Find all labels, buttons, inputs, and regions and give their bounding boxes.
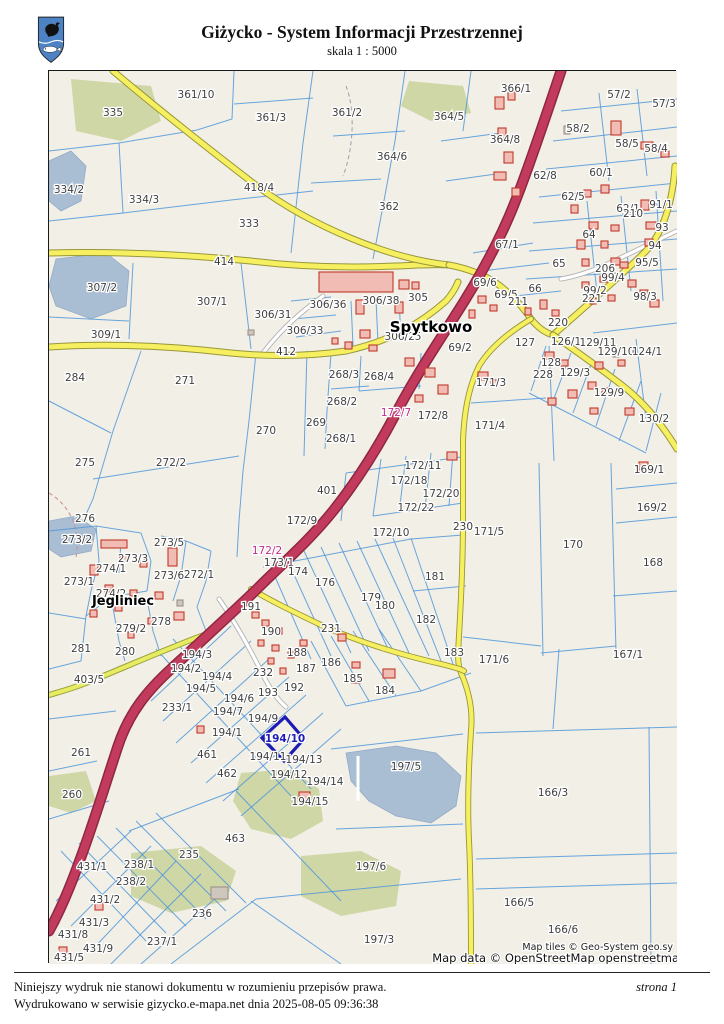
parcel-label: 58/5: [615, 138, 639, 150]
parcel-label: 235: [179, 849, 199, 861]
parcel-label: 194/4: [202, 671, 233, 683]
parcel-label: 197/6: [356, 861, 387, 873]
parcel-label: 69/2: [448, 342, 472, 354]
building: [248, 330, 254, 335]
parcel-label: 194/7: [213, 706, 243, 718]
parcel-label: 190: [261, 626, 281, 638]
parcel-label: 185: [343, 673, 363, 685]
parcel-label: 361/2: [332, 107, 362, 119]
parcel-label: 281: [71, 643, 91, 655]
parcel-label: 194/3: [182, 649, 212, 661]
parcel-label: 98/3: [633, 291, 657, 303]
parcel-label: 364/8: [490, 134, 520, 146]
parcel-label: 99/4: [601, 272, 625, 284]
parcel-label: 194/2: [171, 663, 201, 675]
parcel-label: 334/2: [54, 184, 84, 196]
building: [611, 225, 619, 231]
parcel-label: 171/5: [474, 526, 504, 538]
parcel-label: 176: [315, 577, 335, 589]
building: [618, 360, 625, 366]
parcel-label: 193: [258, 687, 278, 699]
parcel-label: 128: [541, 357, 561, 369]
parcel-label: 129/10: [598, 346, 635, 358]
parcel-label: 268/2: [327, 396, 357, 408]
parcel-label: 126/1: [551, 336, 581, 348]
building: [568, 390, 577, 398]
parcel-label: 364/6: [377, 151, 408, 163]
parcel-label: 274/1: [96, 563, 126, 575]
building: [571, 205, 578, 213]
parcel-label: 194/12: [271, 769, 308, 781]
building: [177, 600, 183, 606]
road-label: 211: [508, 296, 528, 308]
building: [399, 280, 409, 289]
parcel-label: 333: [239, 218, 259, 230]
parcel-label: 95/5: [635, 257, 659, 269]
parcel-label: 166/3: [538, 787, 568, 799]
building: [360, 330, 370, 338]
parcel-label: 194/6: [224, 693, 255, 705]
parcel-label: 66: [528, 283, 542, 295]
parcel-label: 171/6: [479, 654, 510, 666]
building: [300, 640, 307, 646]
parcel-label: 67/1: [495, 239, 519, 251]
building: [589, 222, 598, 229]
parcel-label: 129/3: [560, 367, 590, 379]
attribution-osm: Map data © OpenStreetMap openstreetma: [432, 951, 677, 964]
parcel-label: 129/9: [594, 387, 624, 399]
building: [211, 887, 228, 899]
parcel-label: 172/9: [287, 515, 317, 527]
parcel-label: 174: [288, 566, 308, 578]
building: [319, 272, 393, 292]
parcel-label: 187: [296, 663, 316, 675]
building: [582, 259, 589, 266]
parcel-label: 306/33: [287, 325, 324, 337]
building: [611, 121, 621, 135]
parcel-label: 431/2: [90, 894, 120, 906]
parcel-label: 169/1: [634, 464, 664, 476]
parcel-label: 275: [75, 457, 95, 469]
parcel-label: 273/2: [62, 534, 92, 546]
parcel-label: 58/2: [566, 123, 590, 135]
parcel-label: 62/5: [561, 191, 585, 203]
parcel-label: 273/6: [154, 570, 185, 582]
parcel-label: 431/9: [83, 943, 113, 955]
footer-divider: [14, 972, 710, 973]
building: [478, 296, 486, 303]
building: [352, 662, 360, 668]
road-label: 220: [548, 317, 568, 329]
parcel-label: 172/11: [405, 460, 442, 472]
page-number: strona 1: [636, 980, 677, 995]
parcel-label: 272/1: [184, 569, 214, 581]
parcel-label: 260: [62, 789, 82, 801]
highlighted-parcel-label: 172/2: [252, 545, 282, 557]
building: [469, 310, 475, 318]
building: [540, 300, 547, 309]
parcel-label: 276: [75, 513, 95, 525]
building: [504, 152, 513, 163]
road-label: 210: [623, 208, 643, 220]
building: [620, 262, 628, 268]
parcel-label: 172/22: [398, 502, 435, 514]
building: [608, 295, 615, 301]
parcel-label: 335: [103, 107, 123, 119]
parcel-label: 191: [241, 601, 261, 613]
building: [155, 592, 163, 599]
building: [383, 669, 395, 678]
building: [577, 240, 585, 249]
building: [601, 241, 608, 248]
building: [625, 408, 634, 415]
parcel-label: 418/4: [244, 182, 275, 194]
building: [628, 280, 636, 287]
parcel-label: 168: [643, 557, 663, 569]
parcel-label: 431/8: [58, 929, 88, 941]
parcel-label: 269: [306, 417, 326, 429]
parcel-label: 233/1: [162, 702, 192, 714]
building: [548, 398, 556, 405]
building: [412, 282, 419, 289]
parcel-label: 184: [375, 685, 395, 697]
parcel-label: 307/1: [197, 296, 227, 308]
parcel-label: 221: [582, 293, 602, 305]
parcel-label: 194/14: [307, 776, 344, 788]
building: [525, 308, 531, 315]
parcel-label: 192: [284, 682, 304, 694]
parcel-label: 194/15: [292, 796, 329, 808]
road-label: 412: [276, 346, 296, 358]
building: [268, 658, 274, 664]
road-label: 230: [453, 521, 473, 533]
building: [197, 726, 204, 733]
parcel-label: 273/1: [64, 576, 94, 588]
parcel-label: 57/2: [607, 89, 631, 101]
parcel-label: 362: [379, 201, 399, 213]
parcel-label: 261: [71, 747, 91, 759]
parcel-label: 238/2: [116, 876, 146, 888]
parcel-label: 431/1: [77, 861, 107, 873]
parcel-label: 271: [175, 375, 195, 387]
building: [494, 172, 506, 180]
building: [495, 97, 504, 109]
parcel-label: 94: [648, 240, 662, 252]
building: [512, 188, 520, 196]
parcel-label: 431/3: [79, 917, 109, 929]
parcel-label: 284: [65, 372, 85, 384]
parcel-label: 171/3: [476, 377, 506, 389]
parcel-label: 334/3: [129, 194, 159, 206]
building: [601, 185, 609, 193]
parcel-label: 183: [444, 647, 464, 659]
building: [258, 640, 264, 646]
parcel-label: 361/10: [178, 89, 215, 101]
road-label: 403/5: [74, 674, 104, 686]
parcel-label: 172/18: [391, 475, 428, 487]
parcel-label: 127: [515, 337, 535, 349]
parcel-label: 307/2: [87, 282, 117, 294]
parcel-label: 58/4: [644, 143, 668, 155]
cadastral-map: 335361/10361/3361/2364/5366/157/257/358/…: [49, 71, 677, 964]
parcel-label: 270: [256, 425, 276, 437]
parcel-label: 169/2: [637, 502, 667, 514]
parcel-label: 431/5: [54, 952, 84, 964]
parcel-label: 236: [192, 908, 212, 920]
parcel-label: 273/5: [154, 537, 184, 549]
parcel-label: 170: [563, 539, 583, 551]
parcel-label: 272/2: [156, 457, 186, 469]
building: [584, 190, 591, 197]
parcel-label: 194/9: [248, 713, 278, 725]
parcel-label: 463: [225, 833, 245, 845]
building: [90, 610, 97, 617]
parcel-label: 188: [287, 647, 307, 659]
building: [552, 310, 559, 316]
place-label-jegliniec: Jegliniec: [91, 594, 154, 609]
parcel-label: 361/3: [256, 112, 286, 124]
building: [447, 452, 457, 460]
parcel-label: 171/4: [475, 420, 506, 432]
parcel-label: 69/6: [473, 277, 497, 289]
parcel-label: 172/20: [423, 488, 460, 500]
building: [280, 668, 286, 674]
building: [595, 362, 603, 369]
parcel-label: 194/1: [212, 727, 242, 739]
building: [405, 358, 414, 366]
parcel-label: 401: [317, 485, 337, 497]
selected-parcel-label: 194/10: [265, 733, 305, 745]
parcel-label: 194/13: [286, 754, 323, 766]
parcel-label: 172/8: [418, 410, 448, 422]
parcel-label: 181: [425, 571, 445, 583]
building: [168, 548, 177, 566]
scale-label: skala 1 : 5000: [0, 44, 724, 59]
building: [345, 342, 352, 349]
footer-print-info: Wydrukowano w serwisie gizycko.e-mapa.ne…: [14, 997, 378, 1012]
parcel-label: 194/11: [250, 751, 287, 763]
parcel-label: 237/1: [147, 936, 177, 948]
building: [101, 540, 127, 548]
parcel-label: 182: [416, 614, 436, 626]
parcel-label: 93: [655, 222, 668, 234]
parcel-label: 60/1: [589, 167, 613, 179]
parcel-label: 364/5: [434, 111, 464, 123]
parcel-label: 279/2: [116, 623, 146, 635]
parcel-label: 166/5: [504, 897, 534, 909]
parcel-label: 309/1: [91, 329, 121, 341]
parcel-label: 197/5: [391, 761, 421, 773]
parcel-label: 62/8: [533, 170, 557, 182]
building: [369, 345, 377, 351]
building: [490, 305, 497, 311]
parcel-label: 130/2: [639, 413, 669, 425]
parcel-label: 268/3: [329, 369, 359, 381]
parcel-label: 166/6: [548, 924, 579, 936]
building: [438, 385, 448, 394]
parcel-label: 306/31: [255, 309, 292, 321]
parcel-label: 194/5: [186, 683, 216, 695]
parcel-label: 228: [533, 369, 553, 381]
road-label: 231: [321, 623, 341, 635]
parcel-label: 462: [217, 768, 237, 780]
parcel-label: 305: [408, 292, 428, 304]
footer-disclaimer: Niniejszy wydruk nie stanowi dokumentu w…: [14, 980, 387, 995]
parcel-label: 64: [582, 229, 596, 241]
print-page: { "header": { "title": "Giżycko - System…: [0, 0, 724, 1024]
parcel-label: 57/3: [652, 98, 676, 110]
place-label-spytkowo: Spytkowo: [390, 318, 473, 336]
parcel-label: 167/1: [613, 649, 643, 661]
parcel-label: 186: [321, 657, 341, 669]
building: [332, 338, 338, 344]
building: [415, 395, 423, 402]
map-viewport: 335361/10361/3361/2364/5366/157/257/358/…: [48, 70, 676, 963]
parcel-label: 278: [151, 616, 171, 628]
page-title: Giżycko - System Informacji Przestrzenne…: [0, 22, 724, 43]
building: [174, 612, 184, 620]
building: [560, 360, 568, 366]
parcel-label: 268/4: [364, 371, 395, 383]
road-label: 414: [214, 256, 234, 268]
parcel-label: 461: [197, 749, 217, 761]
parcel-label: 172/10: [373, 527, 410, 539]
building: [272, 645, 279, 651]
parcel-label: 180: [375, 600, 395, 612]
parcel-label: 280: [115, 646, 135, 658]
parcel-label: 366/1: [501, 83, 531, 95]
parcel-label: 268/1: [326, 433, 356, 445]
parcel-label: 197/3: [364, 934, 394, 946]
print-header: Giżycko - System Informacji Przestrzenne…: [0, 0, 724, 70]
parcel-label: 306/38: [363, 295, 400, 307]
parcel-label: 65: [552, 258, 565, 270]
building: [338, 634, 346, 641]
parcel-label: 238/1: [124, 859, 154, 871]
parcel-label: 306/36: [310, 299, 347, 311]
highlighted-parcel-label: 172/7: [381, 407, 411, 419]
building: [590, 408, 598, 414]
parcel-label: 124/1: [632, 346, 662, 358]
parcel-label: 91/1: [649, 199, 673, 211]
building: [425, 368, 435, 377]
road-label: 232: [253, 667, 273, 679]
